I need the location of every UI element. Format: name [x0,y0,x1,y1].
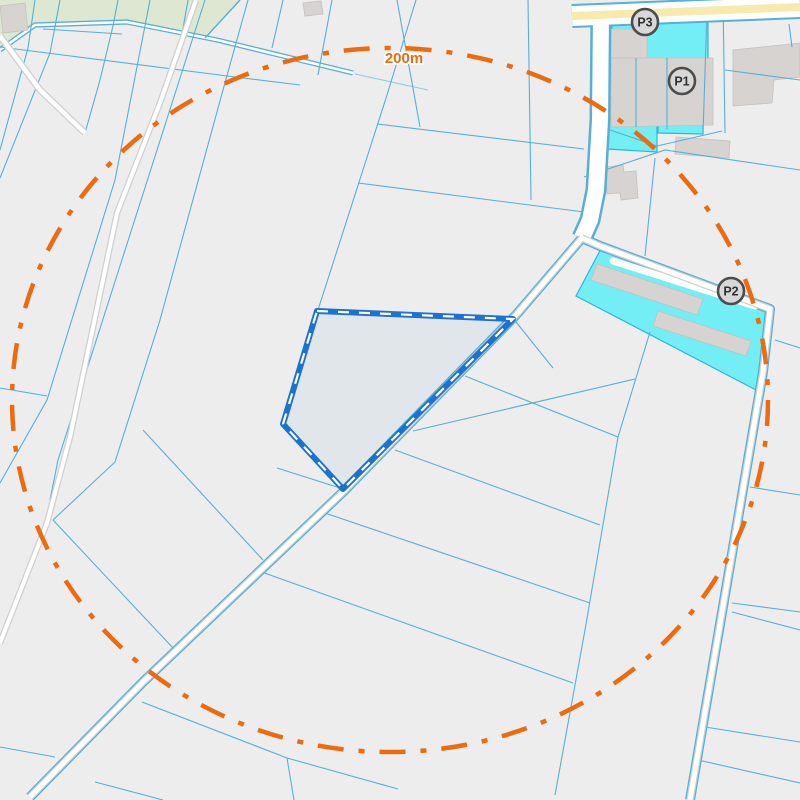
marker-label: P1 [674,75,689,89]
map-viewport: 200mP1P2P3 [0,0,800,800]
marker-p2[interactable]: P2 [718,278,744,304]
building [611,58,713,127]
marker-p1[interactable]: P1 [669,68,695,94]
building [303,1,323,16]
map-canvas[interactable]: 200mP1P2P3 [0,0,800,800]
marker-p3[interactable]: P3 [632,9,658,35]
building [0,3,28,33]
marker-label: P2 [723,285,738,299]
marker-label: P3 [637,16,652,30]
radius-label: 200m [385,50,423,67]
